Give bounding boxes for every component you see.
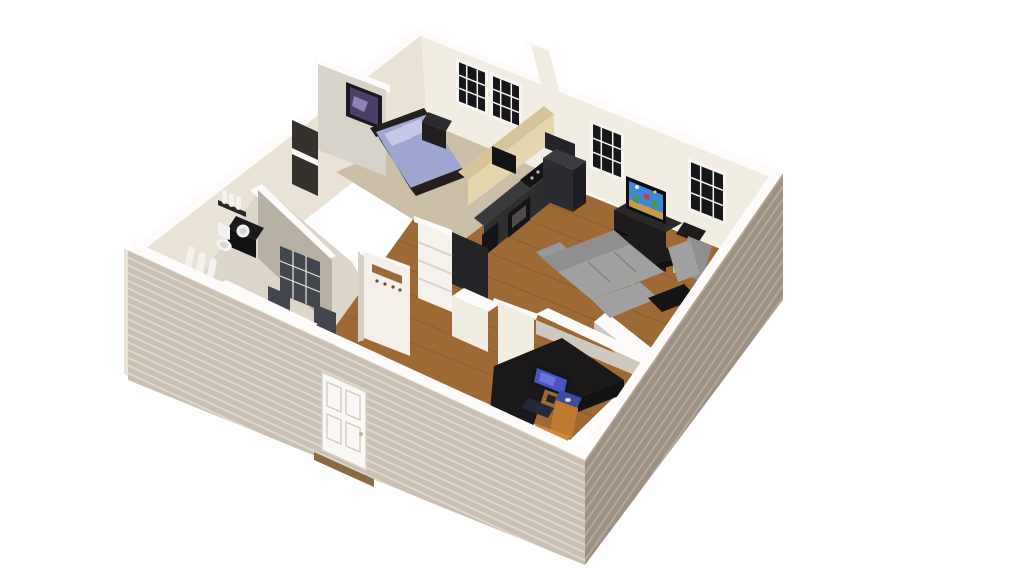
hook-peg	[391, 285, 394, 288]
hook-wall-edge	[358, 250, 364, 342]
tv-game-cloud	[635, 185, 639, 189]
hook-wall-face	[364, 252, 410, 356]
hook-peg	[398, 288, 401, 291]
toiletry-bottle	[229, 193, 234, 207]
toiletry-bottle	[222, 190, 227, 204]
fridge-side	[573, 161, 586, 212]
toiletry-bottle	[236, 196, 241, 210]
cooktop-knob	[536, 170, 539, 173]
sink-basin	[240, 228, 247, 235]
door-knob	[359, 432, 363, 436]
render-canvas	[0, 0, 1024, 576]
cooktop-knob	[530, 176, 533, 179]
hook-peg	[383, 282, 386, 285]
floor-plan-3d-render	[0, 0, 1024, 576]
pantry-shelves	[414, 216, 452, 312]
hook-peg	[375, 279, 378, 282]
tv-game-coin	[654, 191, 657, 194]
mouse	[565, 398, 571, 402]
